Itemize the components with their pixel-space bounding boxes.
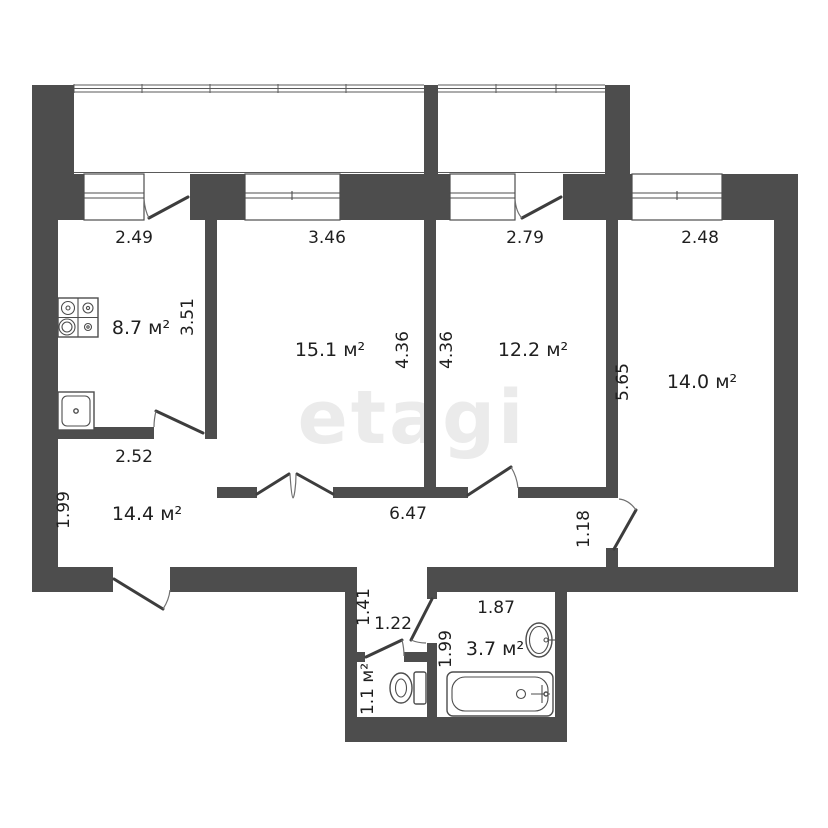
room-label-hall: 14.4 м²: [112, 503, 182, 525]
wall-segment: [357, 652, 365, 662]
watermark-text: etagi: [298, 375, 527, 461]
kitchen-sink-icon: [58, 392, 94, 430]
wall-segment: [217, 487, 257, 498]
wall-segment: [32, 174, 84, 220]
wall-segment: [32, 85, 74, 175]
dim-label-room3-width: 2.48: [681, 228, 719, 248]
wall-segment: [424, 85, 438, 175]
bathtub-icon: [447, 672, 553, 716]
wall-segment: [205, 219, 217, 439]
room-label-bathroom: 3.7 м²: [466, 638, 524, 660]
wall-segment: [555, 592, 567, 717]
room-label-kitchen: 8.7 м²: [112, 317, 170, 339]
floor-plan: etagi: [0, 0, 828, 828]
wall-segment: [404, 652, 427, 662]
window-room1: [245, 174, 340, 220]
wall-segment: [170, 567, 357, 592]
wall-segment: [190, 174, 245, 220]
wall-segment: [606, 548, 618, 567]
wall-segment: [518, 487, 618, 498]
wall-segment: [567, 567, 798, 592]
dim-label-bath-height: 1.99: [436, 630, 456, 668]
floor-plan-page: etagi: [0, 0, 828, 828]
stove-icon: [58, 298, 98, 337]
dim-label-room3-door: 1.18: [574, 510, 594, 548]
wall-segment: [605, 85, 630, 175]
wall-segment: [424, 219, 436, 497]
wall-segment: [774, 220, 798, 592]
room-label-room1: 15.1 м²: [295, 339, 365, 361]
dim-label-room3-height: 5.65: [613, 363, 633, 401]
dim-label-kitchen-width: 2.49: [115, 228, 153, 248]
dim-label-hall-width: 6.47: [389, 504, 427, 524]
wall-segment: [722, 174, 798, 220]
window-room2: [450, 174, 515, 220]
wall-segment: [427, 567, 567, 592]
window-kitchen: [84, 174, 144, 220]
wall-segment: [436, 487, 468, 498]
dim-label-room1-width: 3.46: [308, 228, 346, 248]
wall-segment: [58, 567, 113, 592]
dim-label-room1-height: 4.36: [393, 331, 413, 369]
toilet-icon: [390, 672, 426, 704]
dim-label-niche-width: 1.22: [374, 614, 412, 634]
wall-segment: [32, 220, 58, 592]
wall-segment: [333, 487, 436, 498]
dim-label-hall-top: 2.52: [115, 447, 153, 467]
room-label-wc: 1.1 м²: [358, 663, 378, 715]
dim-label-kitchen-height: 3.51: [178, 298, 198, 336]
wall-segment: [340, 174, 450, 220]
room-label-room3: 14.0 м²: [667, 371, 737, 393]
dim-label-niche-depth: 1.41: [354, 588, 374, 626]
wall-segment: [563, 174, 632, 220]
dim-label-bath-width: 1.87: [477, 598, 515, 618]
window-room3: [632, 174, 722, 220]
wall-segment: [606, 219, 618, 498]
wall-segment: [345, 717, 567, 742]
dim-label-room2-width: 2.79: [506, 228, 544, 248]
dim-label-room2-height: 4.36: [437, 331, 457, 369]
dim-label-hall-left: 1.99: [54, 491, 74, 529]
room-label-room2: 12.2 м²: [498, 339, 568, 361]
